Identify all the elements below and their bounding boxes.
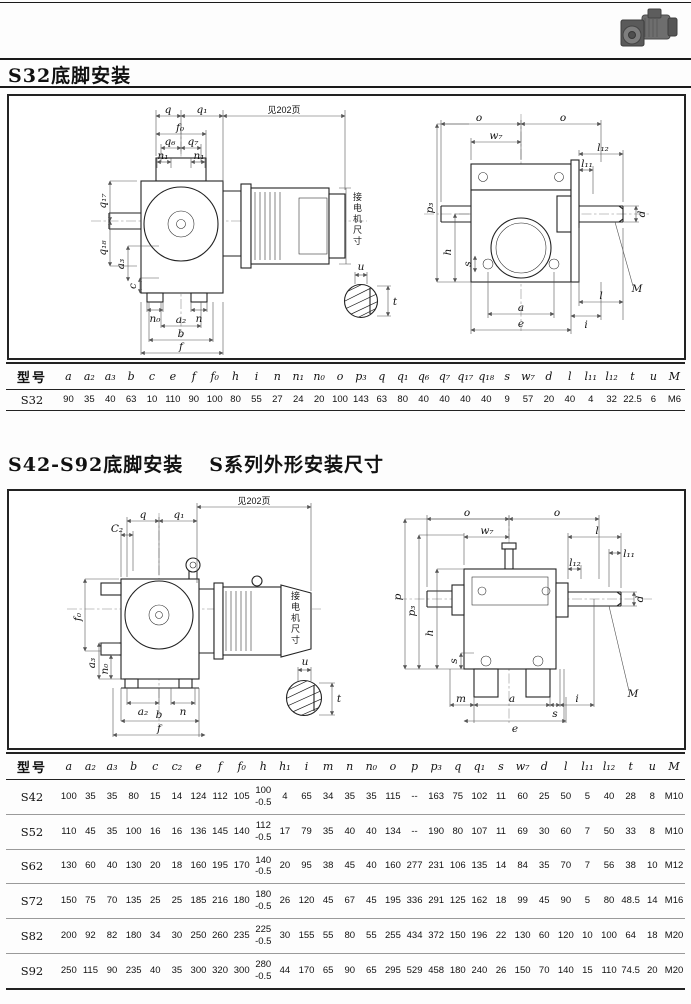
- column-header: a: [58, 364, 79, 390]
- dim-label: o: [464, 507, 470, 519]
- dim-label: q₇: [188, 136, 200, 148]
- column-header: a₃: [101, 754, 123, 780]
- model-column-header: 型号: [6, 364, 58, 390]
- column-header: a₃: [100, 364, 121, 390]
- header-row: 型号aa₂a₃bcc₂eff₀hh₁imnn₀opp₃qq₁sw₇dll₁₁l₁…: [6, 754, 685, 780]
- dim-label: s: [462, 261, 474, 267]
- value-cell: 55: [317, 919, 339, 954]
- value-cell: 115: [80, 953, 102, 987]
- dim-label: a₃: [115, 259, 127, 269]
- column-header: w₇: [512, 754, 534, 780]
- value-cell: 125: [447, 884, 469, 919]
- dim-label: q₆: [165, 136, 177, 148]
- value-cell: 55: [361, 919, 383, 954]
- value-cell: 80: [447, 814, 469, 849]
- thread-label: M: [627, 688, 639, 700]
- column-header: n₀: [361, 754, 383, 780]
- dim-label: l: [599, 290, 602, 302]
- value-cell: 235: [231, 919, 253, 954]
- value-cell: 75: [80, 884, 102, 919]
- dim-label: n: [196, 313, 203, 325]
- value-cell: 160: [188, 849, 210, 884]
- dim-label: q₁: [197, 104, 208, 116]
- value-cell: 130: [58, 849, 80, 884]
- value-cell: M6: [664, 390, 685, 411]
- value-cell: 90: [183, 390, 204, 411]
- value-cell: 45: [361, 884, 383, 919]
- value-cell: 35: [101, 814, 123, 849]
- value-cell: 160: [382, 849, 404, 884]
- value-cell: 112: [209, 780, 231, 815]
- value-cell: 150: [512, 953, 534, 987]
- value-cell: 140: [555, 953, 577, 987]
- value-cell: 40: [339, 814, 361, 849]
- value-cell: 196: [469, 919, 491, 954]
- value-cell: 90: [101, 953, 123, 987]
- value-cell: 40: [361, 814, 383, 849]
- dim-label: o: [560, 112, 566, 124]
- table-row: S5211045351001616136145140112-0.51779354…: [6, 814, 685, 849]
- value-cell: 143: [350, 390, 371, 411]
- value-cell: 55: [246, 390, 267, 411]
- value-cell: 458: [425, 953, 447, 987]
- s42-s92-dimension-drawing: 见202页 q q₁ C₂ f₀ a₃ n₀ a₂ n b f: [9, 491, 684, 746]
- value-cell: 107: [469, 814, 491, 849]
- value-cell: 22: [490, 919, 512, 954]
- model-cell: S52: [6, 814, 58, 849]
- column-header: f₀: [231, 754, 253, 780]
- value-cell: 180: [231, 884, 253, 919]
- value-cell: 40: [455, 390, 476, 411]
- column-header: q: [447, 754, 469, 780]
- value-cell: 180: [123, 919, 145, 954]
- value-cell: 40: [476, 390, 497, 411]
- dim-label: a₂: [138, 706, 148, 718]
- dim-label: f: [178, 341, 185, 353]
- column-header: f₀: [204, 364, 225, 390]
- dim-label: a₂: [176, 314, 186, 326]
- value-cell: 35: [533, 849, 555, 884]
- value-cell: 235: [123, 953, 145, 987]
- dim-label: f: [156, 723, 163, 735]
- value-cell: 6: [643, 390, 664, 411]
- dim-label: a₃: [86, 658, 98, 668]
- value-cell: 8: [641, 814, 663, 849]
- section2-title: S42-S92底脚安装S系列外形安装尺寸: [8, 450, 384, 477]
- value-cell: 38: [317, 849, 339, 884]
- value-cell: 60: [533, 919, 555, 954]
- column-header: c: [144, 754, 166, 780]
- value-cell: 65: [296, 780, 318, 815]
- value-cell: 10: [142, 390, 163, 411]
- column-header: n: [339, 754, 361, 780]
- column-header: q₁₈: [476, 364, 497, 390]
- value-cell: 190: [425, 814, 447, 849]
- value-cell: 110: [598, 953, 620, 987]
- value-cell: 60: [555, 814, 577, 849]
- value-cell: 195: [382, 884, 404, 919]
- value-cell: 50: [598, 814, 620, 849]
- column-header: i: [246, 364, 267, 390]
- dim-label: n₀: [150, 313, 162, 325]
- value-cell: 7: [577, 814, 599, 849]
- value-cell: 30: [166, 919, 188, 954]
- value-cell: 56: [598, 849, 620, 884]
- value-cell: M16: [663, 884, 685, 919]
- table-row: S6213060401302018160195170140-0.52095384…: [6, 849, 685, 884]
- table-row: S8220092821803430250260235225-0.53015555…: [6, 919, 685, 954]
- dim-label: p₃: [424, 203, 436, 214]
- column-header: h: [225, 364, 246, 390]
- column-header: q₇: [434, 364, 455, 390]
- value-cell: 70: [555, 849, 577, 884]
- value-cell: 434: [404, 919, 426, 954]
- dim-label: q: [140, 509, 147, 521]
- value-cell: 63: [371, 390, 392, 411]
- value-cell: 17: [274, 814, 296, 849]
- value-cell: 45: [533, 884, 555, 919]
- s32-drawing-panel: q q₁ 见202页 f₀ q₆ q₇ n₁ n₁ q₁₇ q₁₈ a₃ c: [7, 94, 686, 360]
- dim-label: q₁₈: [97, 240, 109, 256]
- thread-label: M: [631, 283, 643, 295]
- dim-label: h: [424, 630, 436, 637]
- value-cell: 64: [620, 919, 642, 954]
- dim-label: f₀: [175, 122, 185, 134]
- value-cell: 45: [80, 814, 102, 849]
- value-cell: 92: [80, 919, 102, 954]
- value-cell: 280-0.5: [252, 953, 274, 987]
- value-cell: 300: [188, 953, 210, 987]
- value-cell: 34: [144, 919, 166, 954]
- value-cell: 82: [101, 919, 123, 954]
- dim-label: n: [180, 706, 187, 718]
- column-header: q₁: [392, 364, 413, 390]
- value-cell: 65: [317, 953, 339, 987]
- dim-label: l₁₂: [597, 142, 609, 154]
- value-cell: M12: [663, 849, 685, 884]
- value-cell: 170: [296, 953, 318, 987]
- value-cell: M20: [663, 953, 685, 987]
- value-cell: 57: [518, 390, 539, 411]
- column-header: b: [123, 754, 145, 780]
- value-cell: 140-0.5: [252, 849, 274, 884]
- column-header: f: [183, 364, 204, 390]
- value-cell: 124: [188, 780, 210, 815]
- value-cell: 372: [425, 919, 447, 954]
- value-cell: 170: [231, 849, 253, 884]
- column-header: p: [404, 754, 426, 780]
- column-header: o: [330, 364, 351, 390]
- column-header: t: [620, 754, 642, 780]
- value-cell: 20: [144, 849, 166, 884]
- column-header: q: [371, 364, 392, 390]
- column-header: h₁: [274, 754, 296, 780]
- value-cell: 28: [620, 780, 642, 815]
- column-header: i: [296, 754, 318, 780]
- column-header: a₂: [80, 754, 102, 780]
- value-cell: 11: [490, 814, 512, 849]
- value-cell: 40: [101, 849, 123, 884]
- dim-label: e: [518, 318, 524, 330]
- value-cell: 32: [601, 390, 622, 411]
- value-cell: 24: [288, 390, 309, 411]
- dim-label: u: [358, 261, 365, 273]
- value-cell: 134: [382, 814, 404, 849]
- value-cell: 40: [434, 390, 455, 411]
- dim-label: a: [518, 302, 524, 314]
- title1-bottom-rule: [0, 86, 691, 88]
- value-cell: 320: [209, 953, 231, 987]
- value-cell: 100: [123, 814, 145, 849]
- column-header: t: [622, 364, 643, 390]
- value-cell: 216: [209, 884, 231, 919]
- value-cell: 195: [209, 849, 231, 884]
- value-cell: 14: [166, 780, 188, 815]
- column-header: c₂: [166, 754, 188, 780]
- s42-s92-dimension-table: 型号aa₂a₃bcc₂eff₀hh₁imnn₀opp₃qq₁sw₇dll₁₁l₁…: [6, 752, 685, 990]
- section2-title-right: S系列外形安装尺寸: [209, 454, 384, 476]
- value-cell: 80: [225, 390, 246, 411]
- value-cell: 225-0.5: [252, 919, 274, 954]
- value-cell: 336: [404, 884, 426, 919]
- dim-label: b: [156, 709, 163, 721]
- dim-label: l: [595, 525, 598, 537]
- value-cell: 40: [598, 780, 620, 815]
- s32-dimension-drawing: q q₁ 见202页 f₀ q₆ q₇ n₁ n₁ q₁₇ q₁₈ a₃ c: [9, 96, 684, 356]
- value-cell: 67: [339, 884, 361, 919]
- value-cell: 40: [100, 390, 121, 411]
- motor-dimension-note: 接电机尺寸: [351, 192, 364, 258]
- value-cell: 70: [101, 884, 123, 919]
- value-cell: 26: [490, 953, 512, 987]
- value-cell: 95: [296, 849, 318, 884]
- value-cell: 63: [121, 390, 142, 411]
- column-header: M: [663, 754, 685, 780]
- value-cell: 110: [58, 814, 80, 849]
- see-page-note: 见202页: [267, 105, 300, 115]
- value-cell: 15: [144, 780, 166, 815]
- value-cell: 163: [425, 780, 447, 815]
- value-cell: 14: [641, 884, 663, 919]
- dim-label: p: [392, 593, 404, 600]
- column-header: m: [317, 754, 339, 780]
- column-header: l: [559, 364, 580, 390]
- model-cell: S62: [6, 849, 58, 884]
- value-cell: 20: [538, 390, 559, 411]
- value-cell: 60: [80, 849, 102, 884]
- value-cell: 145: [209, 814, 231, 849]
- dim-label: t: [393, 296, 398, 308]
- value-cell: 14: [490, 849, 512, 884]
- motor-dimension-note: 接电机尺寸: [289, 591, 302, 653]
- value-cell: 18: [490, 884, 512, 919]
- catalog-page: S32底脚安装: [0, 0, 691, 1004]
- dim-label: o: [554, 507, 560, 519]
- value-cell: 35: [79, 390, 100, 411]
- column-header: p₃: [425, 754, 447, 780]
- model-cell: S32: [6, 390, 58, 411]
- column-header: u: [643, 364, 664, 390]
- dim-label: n₁: [158, 150, 169, 162]
- gear-motor-photo: [618, 6, 682, 50]
- value-cell: 38: [620, 849, 642, 884]
- column-header: d: [533, 754, 555, 780]
- value-cell: 35: [361, 780, 383, 815]
- value-cell: 20: [641, 953, 663, 987]
- value-cell: 16: [166, 814, 188, 849]
- value-cell: 40: [413, 390, 434, 411]
- dim-label: i: [584, 319, 587, 331]
- model-column-header: 型号: [6, 754, 58, 780]
- value-cell: 44: [274, 953, 296, 987]
- see-page-note: 见202页: [237, 496, 270, 506]
- value-cell: 5: [577, 884, 599, 919]
- column-header: b: [121, 364, 142, 390]
- dim-label: d: [634, 595, 646, 602]
- value-cell: 90: [58, 390, 79, 411]
- dim-label: i: [575, 693, 578, 705]
- value-cell: 80: [123, 780, 145, 815]
- dim-label: w₇: [480, 525, 494, 537]
- value-cell: 18: [641, 919, 663, 954]
- value-cell: 255: [382, 919, 404, 954]
- value-cell: 30: [274, 919, 296, 954]
- value-cell: 80: [392, 390, 413, 411]
- model-cell: S82: [6, 919, 58, 954]
- value-cell: 100-0.5: [252, 780, 274, 815]
- value-cell: 99: [512, 884, 534, 919]
- column-header: q₁: [469, 754, 491, 780]
- value-cell: 48.5: [620, 884, 642, 919]
- column-header: s: [497, 364, 518, 390]
- value-cell: 130: [512, 919, 534, 954]
- dim-label: o: [476, 112, 482, 124]
- value-cell: 60: [512, 780, 534, 815]
- column-header: l₁₁: [580, 364, 601, 390]
- value-cell: 69: [512, 814, 534, 849]
- value-cell: 10: [641, 849, 663, 884]
- value-cell: 84: [512, 849, 534, 884]
- header-row: 型号aa₂a₃bceff₀hinn₁n₀op₃qq₁q₆q₇q₁₇q₁₈sw₇d…: [6, 364, 685, 390]
- value-cell: 45: [339, 849, 361, 884]
- value-cell: 155: [296, 919, 318, 954]
- value-cell: 300: [231, 953, 253, 987]
- column-header: M: [664, 364, 685, 390]
- column-header: l₁₂: [598, 754, 620, 780]
- dim-label: l₁₂: [569, 557, 581, 569]
- dim-label: n₀: [99, 663, 111, 675]
- column-header: n₁: [288, 364, 309, 390]
- value-cell: 185: [188, 884, 210, 919]
- value-cell: 5: [577, 780, 599, 815]
- dim-label: p₃: [406, 606, 418, 617]
- dim-label: C₂: [111, 523, 123, 535]
- value-cell: 40: [559, 390, 580, 411]
- value-cell: 45: [317, 884, 339, 919]
- value-cell: 277: [404, 849, 426, 884]
- value-cell: 18: [166, 849, 188, 884]
- value-cell: 9: [497, 390, 518, 411]
- table-row: S7215075701352525185216180180-0.52612045…: [6, 884, 685, 919]
- column-header: q₁₇: [455, 364, 476, 390]
- table-row: S421003535801514124112105100-0.546534353…: [6, 780, 685, 815]
- value-cell: 35: [339, 780, 361, 815]
- value-cell: 120: [296, 884, 318, 919]
- s32-dimension-table: 型号aa₂a₃bceff₀hinn₁n₀op₃qq₁q₆q₇q₁₇q₁₈sw₇d…: [6, 362, 685, 411]
- value-cell: 27: [267, 390, 288, 411]
- value-cell: 140: [231, 814, 253, 849]
- value-cell: 80: [339, 919, 361, 954]
- value-cell: 11: [490, 780, 512, 815]
- column-header: l₁₂: [601, 364, 622, 390]
- value-cell: 20: [274, 849, 296, 884]
- value-cell: 4: [580, 390, 601, 411]
- dim-label: d: [636, 210, 648, 217]
- value-cell: 135: [123, 884, 145, 919]
- value-cell: 112-0.5: [252, 814, 274, 849]
- value-cell: 35: [166, 953, 188, 987]
- value-cell: M20: [663, 919, 685, 954]
- section1-title: S32底脚安装: [8, 61, 131, 88]
- value-cell: M10: [663, 814, 685, 849]
- value-cell: 35: [80, 780, 102, 815]
- dim-label: a: [509, 693, 515, 705]
- value-cell: 4: [274, 780, 296, 815]
- value-cell: 25: [533, 780, 555, 815]
- dim-label: h: [442, 249, 454, 256]
- value-cell: 25: [144, 884, 166, 919]
- dim-label: c: [127, 283, 139, 289]
- value-cell: --: [404, 780, 426, 815]
- title1-top-rule: [0, 58, 691, 60]
- value-cell: 40: [361, 849, 383, 884]
- column-header: o: [382, 754, 404, 780]
- column-header: e: [188, 754, 210, 780]
- value-cell: 180-0.5: [252, 884, 274, 919]
- value-cell: 240: [469, 953, 491, 987]
- value-cell: 200: [58, 919, 80, 954]
- value-cell: 105: [231, 780, 253, 815]
- dim-label: s: [448, 658, 460, 664]
- dim-label: f₀: [72, 612, 84, 622]
- column-header: h: [252, 754, 274, 780]
- dim-label: q₁: [174, 509, 185, 521]
- value-cell: 22.5: [622, 390, 643, 411]
- dim-label: u: [302, 656, 309, 668]
- column-header: e: [162, 364, 183, 390]
- value-cell: 15: [577, 953, 599, 987]
- value-cell: 30: [533, 814, 555, 849]
- table-row: S92250115902354035300320300280-0.5441706…: [6, 953, 685, 987]
- dim-label: w₇: [489, 130, 503, 142]
- dim-label: n₁: [194, 150, 205, 162]
- column-header: u: [641, 754, 663, 780]
- value-cell: 10: [577, 919, 599, 954]
- column-header: d: [538, 364, 559, 390]
- section2-title-left: S42-S92底脚安装: [8, 454, 183, 476]
- dim-label: b: [178, 328, 185, 340]
- value-cell: 70: [533, 953, 555, 987]
- value-cell: 65: [361, 953, 383, 987]
- value-cell: M10: [663, 780, 685, 815]
- value-cell: 90: [555, 884, 577, 919]
- value-cell: 8: [641, 780, 663, 815]
- column-header: w₇: [518, 364, 539, 390]
- model-cell: S92: [6, 953, 58, 987]
- value-cell: 80: [598, 884, 620, 919]
- value-cell: 180: [447, 953, 469, 987]
- value-cell: 130: [123, 849, 145, 884]
